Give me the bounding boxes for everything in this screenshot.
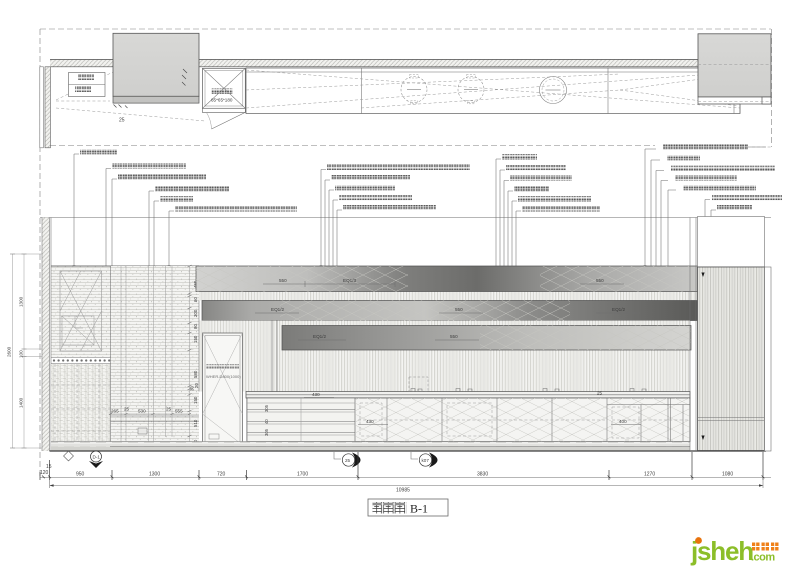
svg-text:305: 305	[264, 428, 269, 436]
svg-text:25: 25	[119, 118, 125, 124]
svg-text:25: 25	[597, 391, 603, 396]
svg-text:550: 550	[596, 278, 604, 283]
svg-text:100: 100	[19, 350, 24, 358]
svg-text:EQ1/3: EQ1/3	[343, 278, 356, 283]
svg-text:430: 430	[312, 392, 320, 397]
svg-text:550: 550	[279, 278, 287, 283]
svg-text:305: 305	[264, 404, 269, 412]
svg-text:10985: 10985	[396, 488, 410, 494]
svg-text:EQ1/2: EQ1/2	[271, 307, 284, 312]
svg-text:555: 555	[175, 409, 183, 414]
svg-text:1080: 1080	[722, 472, 733, 478]
svg-text:80: 80	[193, 324, 198, 329]
svg-text:25: 25	[345, 458, 351, 463]
svg-text:.com: .com	[751, 552, 775, 564]
svg-text:550: 550	[450, 334, 458, 339]
svg-text:40: 40	[264, 419, 269, 424]
svg-text:25: 25	[166, 407, 172, 412]
svg-text:60: 60	[193, 297, 198, 302]
svg-text:D-1: D-1	[93, 455, 101, 460]
svg-text:265: 265	[111, 409, 119, 414]
svg-text:65*65*180: 65*65*180	[211, 98, 233, 103]
svg-text:150: 150	[193, 396, 198, 404]
svg-text:WHER-D800(1000): WHER-D800(1000)	[206, 374, 241, 379]
svg-text:1400: 1400	[19, 397, 24, 408]
svg-text:300: 300	[193, 309, 198, 317]
svg-text:150: 150	[193, 335, 198, 343]
svg-text:B-1: B-1	[410, 502, 428, 516]
svg-text:510: 510	[193, 419, 198, 427]
svg-text:1300: 1300	[149, 472, 160, 478]
svg-text:1300: 1300	[19, 296, 24, 307]
svg-text:530: 530	[138, 409, 146, 414]
svg-text:EQ1/2: EQ1/2	[313, 334, 326, 339]
svg-text:580: 580	[193, 370, 198, 378]
svg-text:3830: 3830	[477, 472, 488, 478]
svg-text:20: 20	[194, 383, 199, 388]
svg-text:EQ1/2: EQ1/2	[612, 307, 625, 312]
svg-text:15: 15	[46, 464, 52, 470]
svg-text:2600: 2600	[7, 346, 12, 357]
svg-text:25: 25	[124, 407, 130, 412]
svg-text:550: 550	[455, 307, 463, 312]
svg-text:720: 720	[217, 472, 226, 478]
svg-text:950: 950	[76, 472, 85, 478]
svg-text:1700: 1700	[297, 472, 308, 478]
svg-text:1270: 1270	[644, 472, 655, 478]
svg-text:k07: k07	[422, 458, 430, 463]
svg-text:120: 120	[40, 470, 49, 476]
